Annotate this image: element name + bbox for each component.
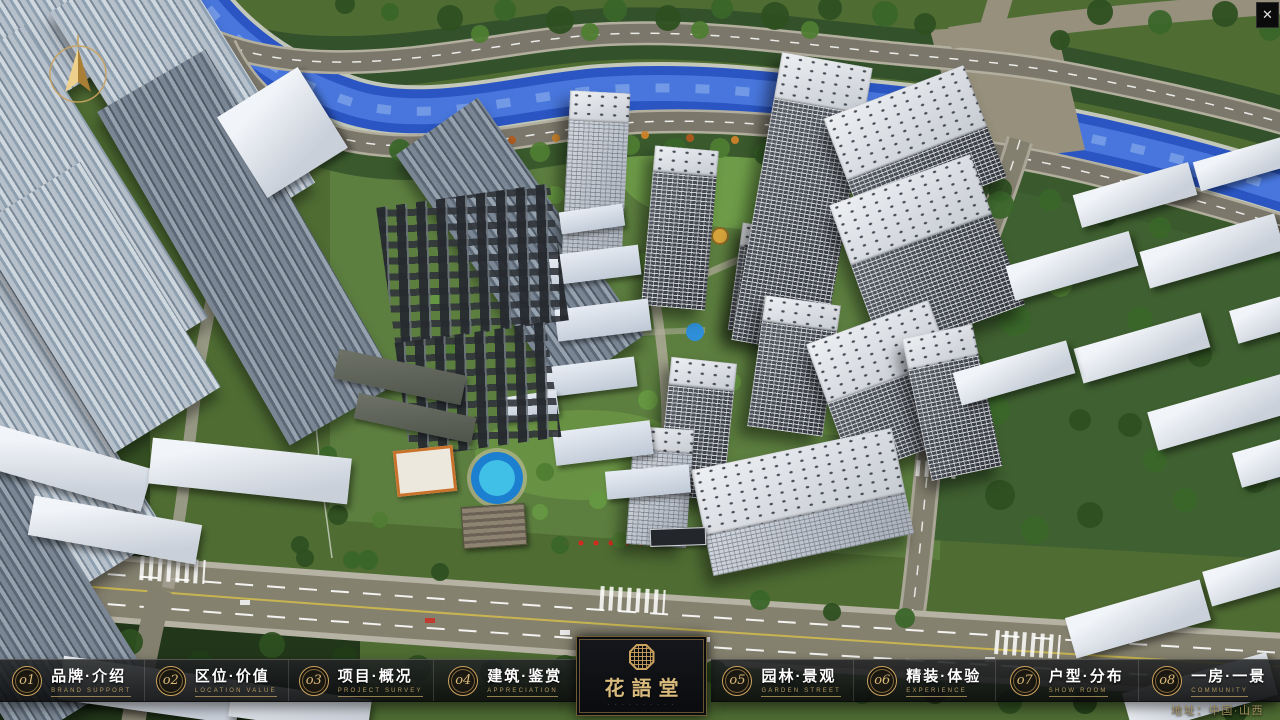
masterplan-presentation: ✕ o1 品牌·介绍 BRAND SUPPORT o2 区位·价值 LOCATI…	[0, 0, 1280, 720]
seal-icon	[629, 644, 655, 670]
south-gate	[650, 527, 707, 547]
nav-label-en: PROJECT SURVEY	[338, 688, 423, 697]
address-label: 地址：中国·山西	[1171, 702, 1264, 718]
nav-label-en: LOCATION VALUE	[195, 688, 277, 697]
nav-item-brand-intro[interactable]: o1 品牌·介绍 BRAND SUPPORT	[0, 660, 144, 701]
nav-label-zh: 户型·分布	[1049, 665, 1124, 686]
nav-label-en: SHOW ROOM	[1049, 688, 1108, 697]
number-badge-icon: o8	[1152, 666, 1182, 696]
building-offsite-slab	[1006, 231, 1139, 301]
building-offsite-slab	[1193, 135, 1280, 191]
project-subtitle: · · · · · · · · · ·	[608, 703, 675, 708]
close-button[interactable]: ✕	[1256, 2, 1279, 28]
nav-label-en: APPRECIATION	[487, 688, 558, 697]
roof	[653, 146, 719, 177]
nav-item-architecture[interactable]: o4 建筑·鉴赏 APPRECIATION	[433, 660, 578, 701]
building-offsite-slab	[1229, 286, 1280, 343]
number-badge-icon: o6	[867, 666, 897, 696]
nav-item-project-survey[interactable]: o3 项目·概况 PROJECT SURVEY	[288, 660, 433, 701]
building-offsite-slab	[1073, 162, 1198, 228]
nav-label-en: BRAND SUPPORT	[51, 688, 131, 697]
building-residential-tower	[641, 146, 719, 311]
nav-label-en: EXPERIENCE	[906, 688, 967, 697]
building-offsite-slab	[1147, 373, 1280, 451]
number-badge-icon: o1	[12, 666, 42, 696]
roof	[569, 91, 630, 124]
building-residential-tower	[562, 91, 631, 259]
nav-label-zh: 品牌·介绍	[51, 665, 126, 686]
number-badge-icon: o4	[448, 666, 478, 696]
nav-bar-left: o1 品牌·介绍 BRAND SUPPORT o2 区位·价值 LOCATION…	[0, 659, 577, 702]
nav-item-location-value[interactable]: o2 区位·价值 LOCATION VALUE	[144, 660, 289, 701]
nav-item-decoration-experience[interactable]: o6 精装·体验 EXPERIENCE	[853, 660, 996, 701]
building-offsite-slab	[1232, 424, 1280, 488]
building-offsite-slab	[1139, 213, 1280, 288]
nav-label-zh: 园林·景观	[761, 665, 836, 686]
sales-center	[393, 445, 457, 497]
building-offsite-slab	[1074, 313, 1211, 384]
chinese-hall	[461, 503, 528, 549]
building-residential-tower	[902, 324, 1003, 481]
number-badge-icon: o5	[722, 666, 752, 696]
project-title: 花語堂	[598, 672, 686, 701]
nav-item-garden-landscape[interactable]: o5 园林·景观 GARDEN STREET	[711, 660, 853, 701]
nav-bar-right: o5 园林·景观 GARDEN STREET o6 精装·体验 EXPERIEN…	[711, 659, 1280, 702]
number-badge-icon: o7	[1010, 666, 1040, 696]
nav-label-zh: 精装·体验	[906, 665, 981, 686]
building-offsite-slab	[1202, 542, 1280, 607]
nav-label-zh: 区位·价值	[195, 665, 270, 686]
buildings-layer	[0, 0, 1280, 720]
roof	[669, 357, 738, 391]
number-badge-icon: o3	[299, 666, 329, 696]
number-badge-icon: o2	[156, 666, 186, 696]
project-logo-panel[interactable]: 花語堂 · · · · · · · · · ·	[576, 636, 707, 716]
nav-item-room-view[interactable]: o8 一房·一景 COMMUNITY	[1138, 660, 1280, 701]
building-offsite-slab	[1065, 580, 1211, 659]
nav-label-zh: 一房·一景	[1191, 665, 1266, 686]
nav-label-en: COMMUNITY	[1191, 688, 1248, 697]
courtyard-houses	[376, 183, 569, 344]
building-offsite-slab	[148, 438, 352, 505]
nav-label-zh: 项目·概况	[338, 665, 413, 686]
nav-label-zh: 建筑·鉴赏	[487, 665, 562, 686]
nav-item-floorplans[interactable]: o7 户型·分布 SHOW ROOM	[995, 660, 1138, 701]
nav-label-en: GARDEN STREET	[761, 688, 841, 697]
compass-north-icon	[45, 33, 111, 107]
